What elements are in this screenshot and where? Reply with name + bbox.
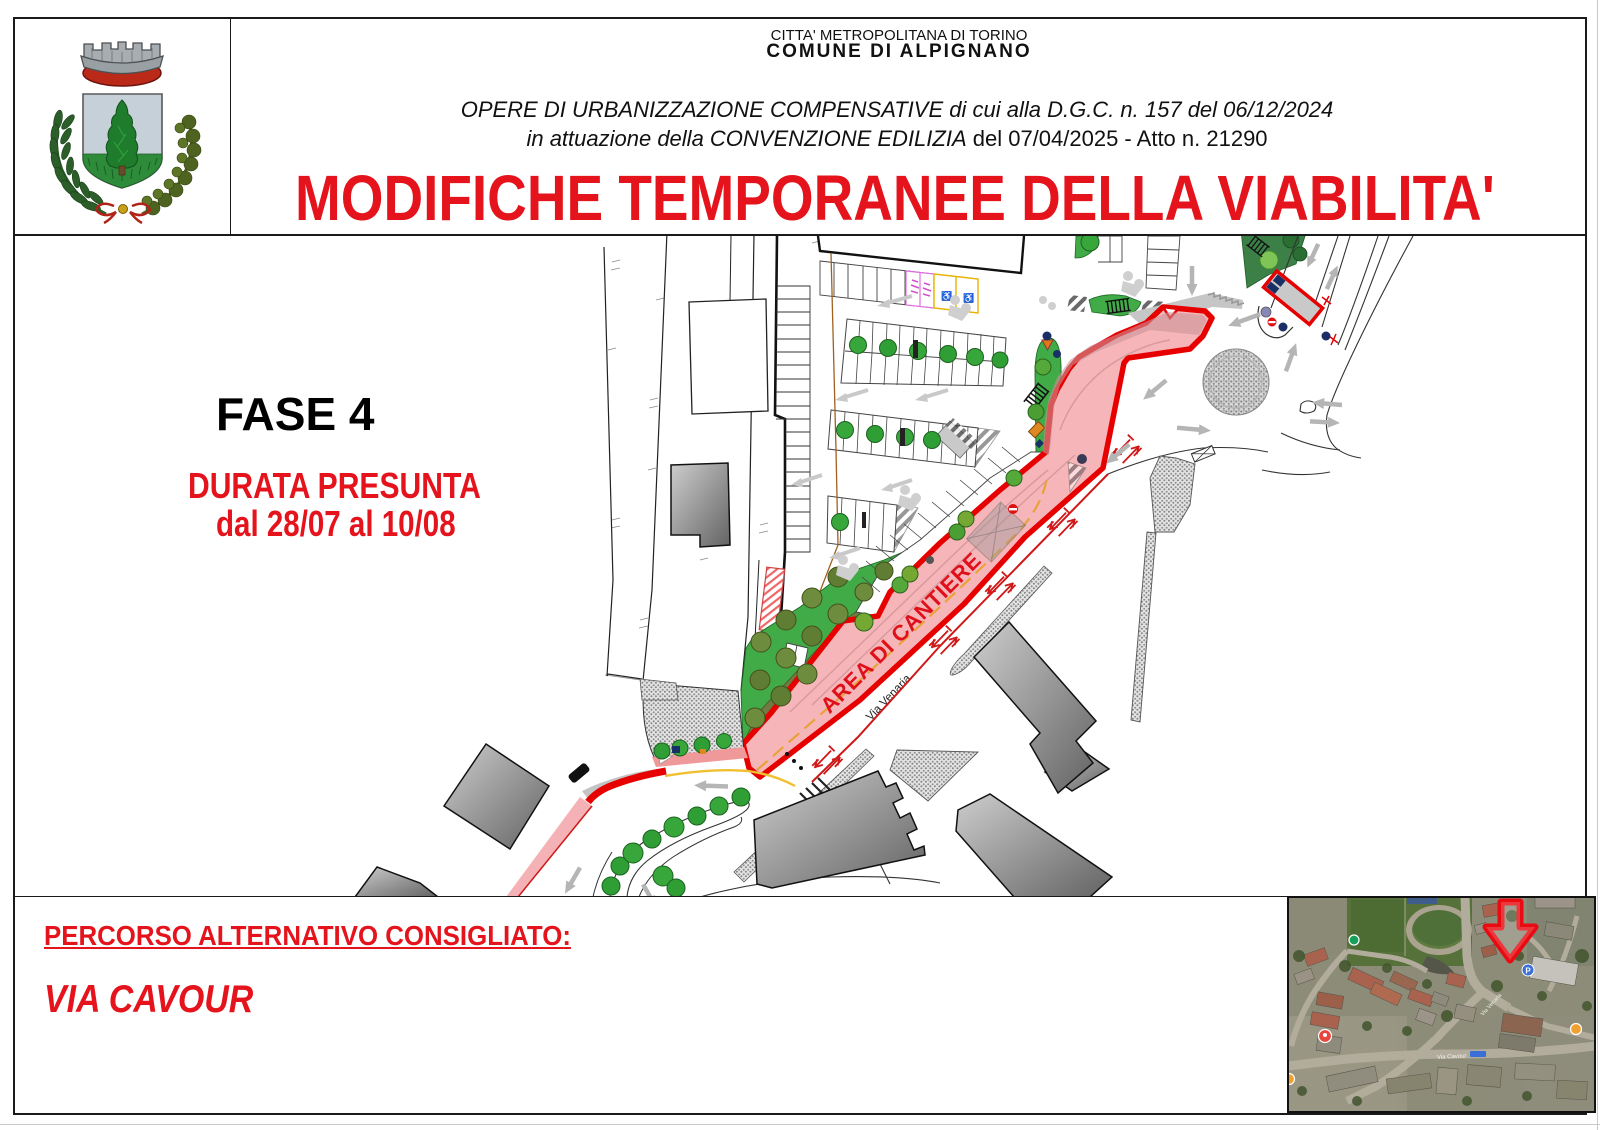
svg-text:P: P	[1525, 967, 1531, 976]
svg-text:♿: ♿	[963, 292, 974, 303]
